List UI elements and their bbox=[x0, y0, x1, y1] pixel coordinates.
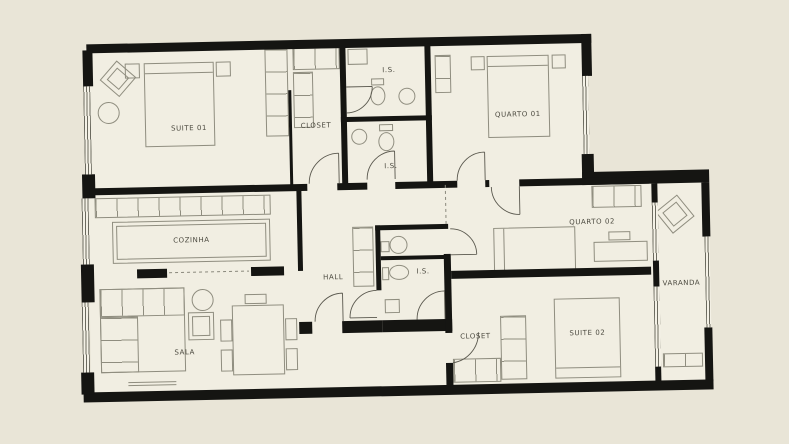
room-label-varanda: VARANDA bbox=[662, 279, 700, 288]
room-label-suite-01: SUITE 01 bbox=[171, 124, 207, 133]
room-label-closet-2: CLOSET bbox=[460, 332, 491, 341]
room-labels-layer: SUITE 01 CLOSET I.S. I.S. QUARTO 01 COZI… bbox=[74, 29, 716, 410]
room-label-sala: SALA bbox=[174, 348, 195, 356]
room-label-is-1: I.S. bbox=[382, 66, 395, 74]
room-label-suite-02: SUITE 02 bbox=[569, 329, 605, 338]
floor-plan: SUITE 01 CLOSET I.S. I.S. QUARTO 01 COZI… bbox=[74, 29, 716, 410]
room-label-quarto-01: QUARTO 01 bbox=[495, 110, 541, 119]
room-label-hall: HALL bbox=[323, 273, 343, 281]
room-label-closet-1: CLOSET bbox=[301, 121, 332, 130]
room-label-is-3: I.S. bbox=[416, 267, 429, 275]
room-label-is-2: I.S. bbox=[384, 162, 397, 170]
floor-plan-canvas: SUITE 01 CLOSET I.S. I.S. QUARTO 01 COZI… bbox=[0, 0, 789, 444]
room-label-cozinha: COZINHA bbox=[173, 236, 210, 245]
room-label-quarto-02: QUARTO 02 bbox=[569, 217, 615, 226]
